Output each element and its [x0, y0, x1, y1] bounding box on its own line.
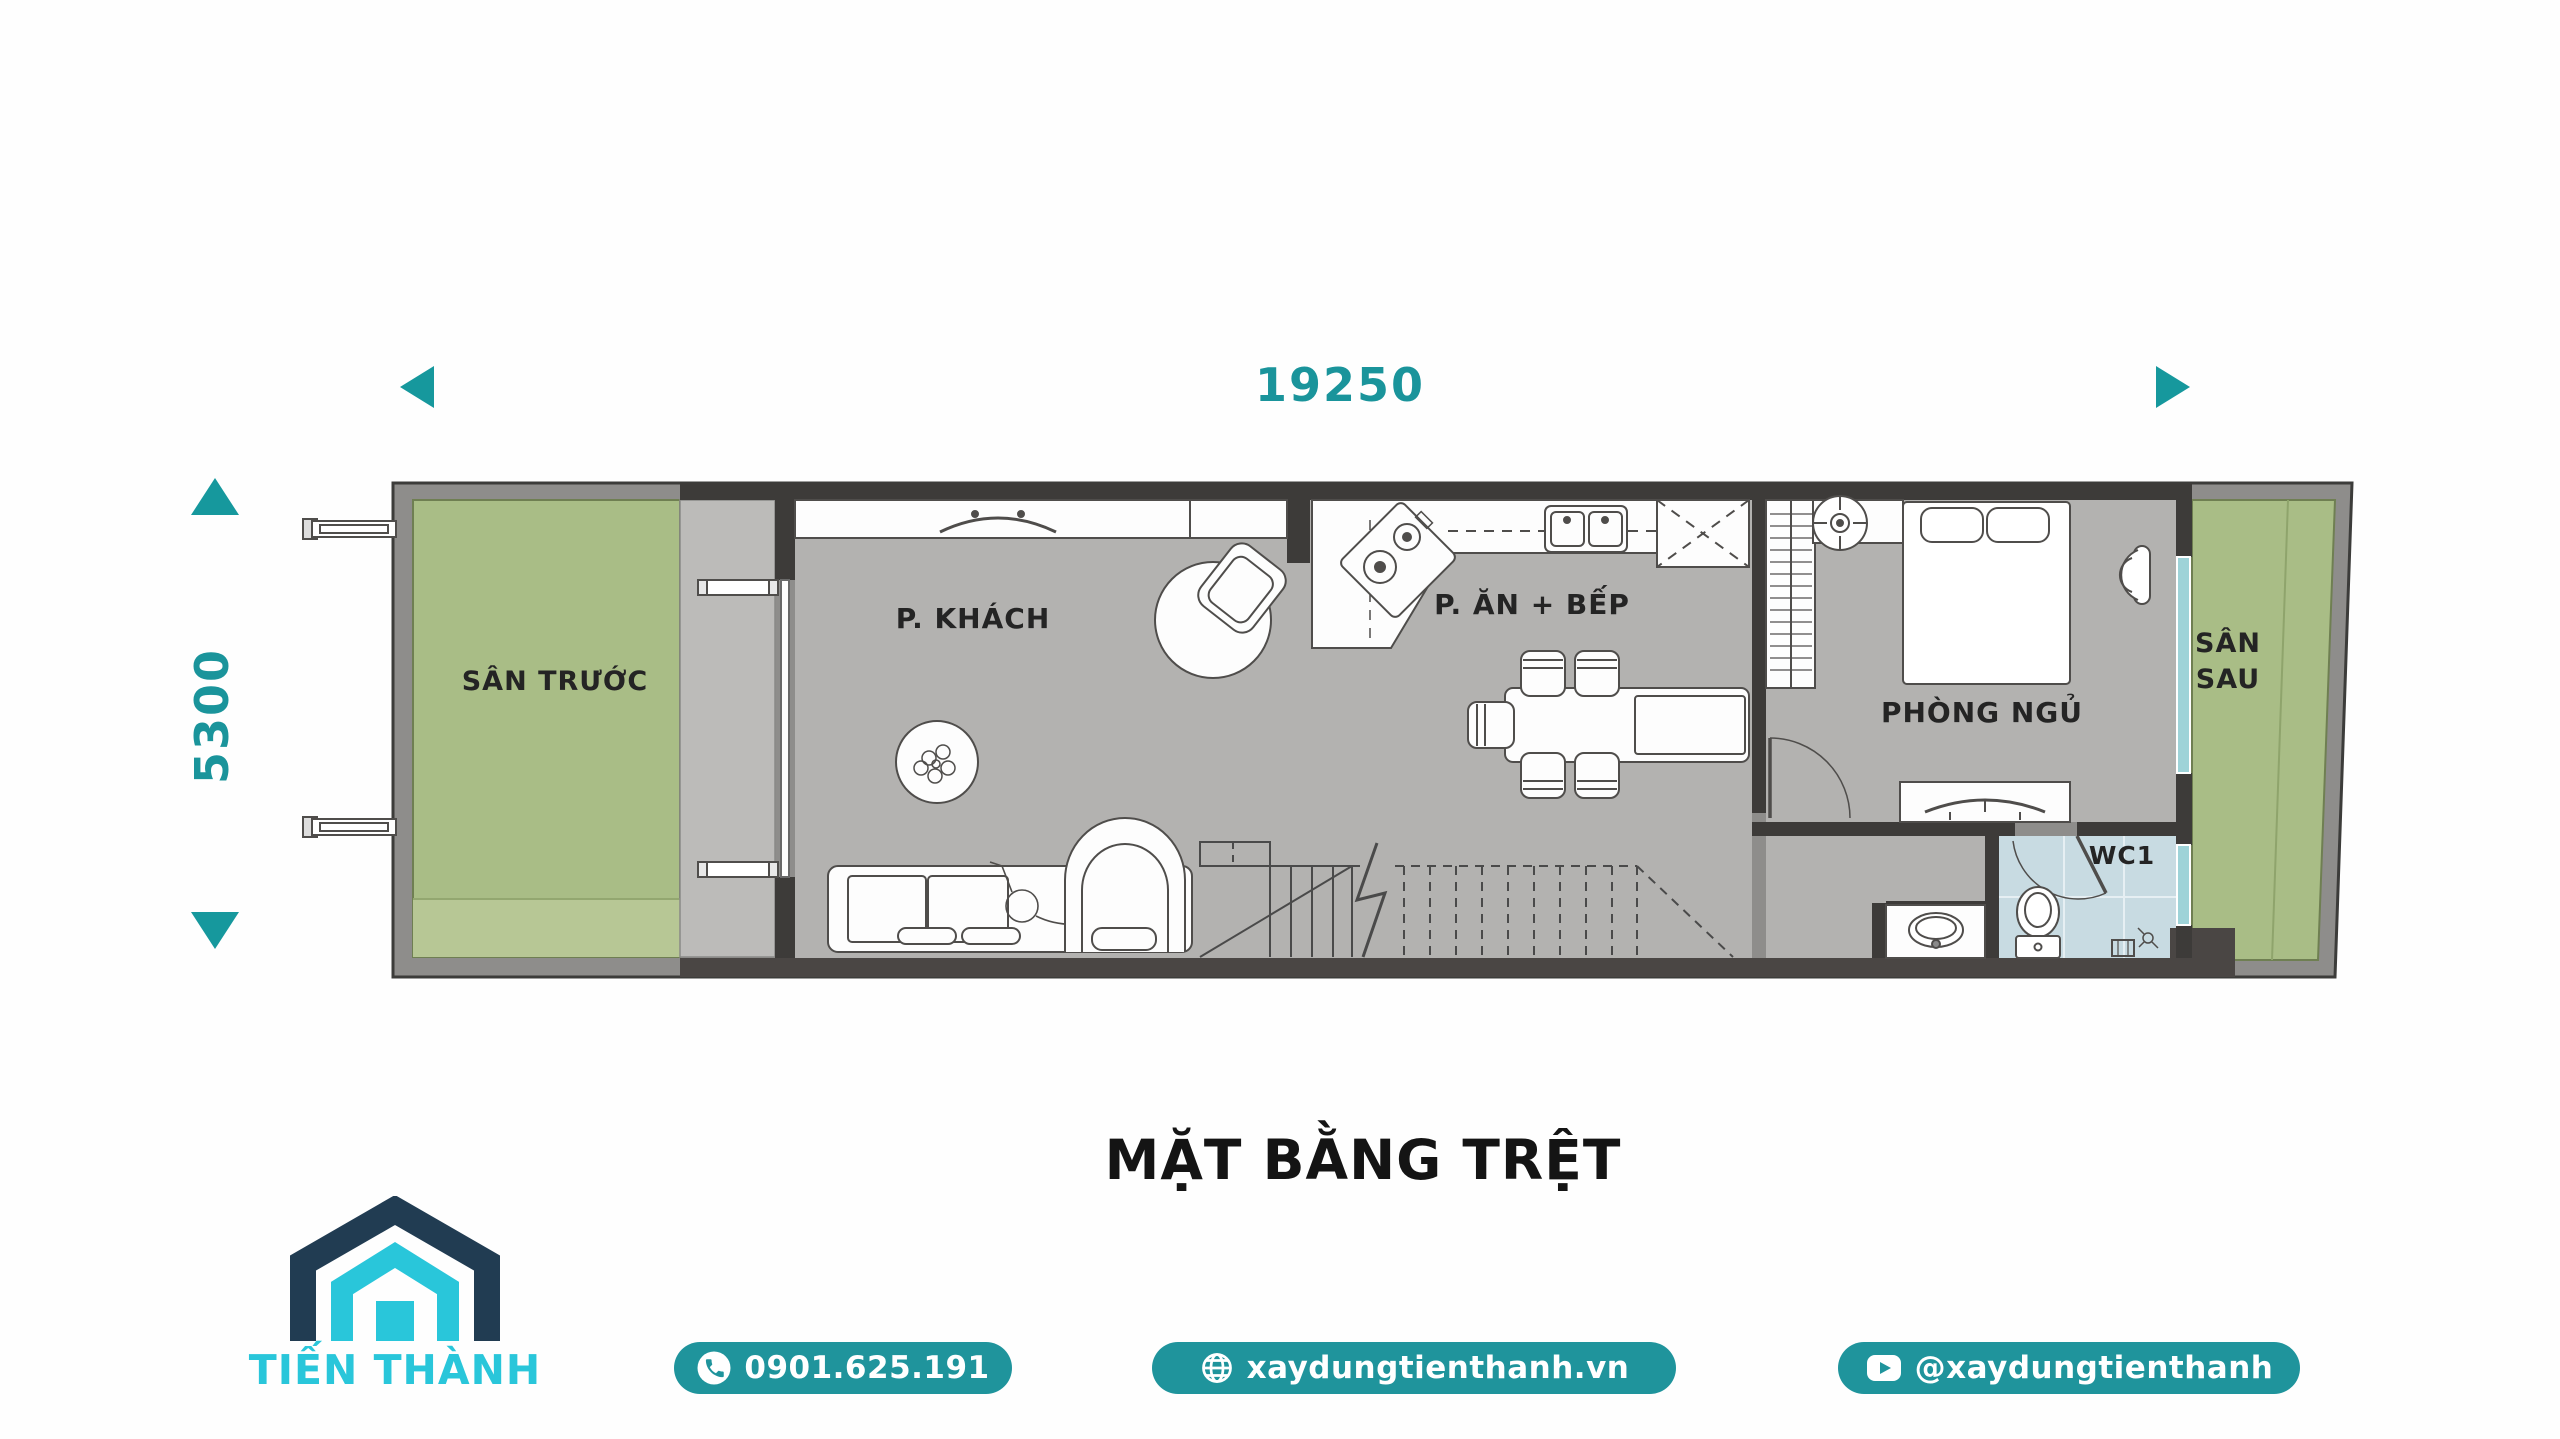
brand-name: TIẾN THÀNH — [249, 1346, 541, 1394]
phone-button[interactable]: 0901.625.191 — [674, 1342, 1012, 1394]
front-glass-door — [781, 580, 789, 877]
front-yard — [413, 500, 680, 957]
bedroom-window — [2177, 557, 2190, 773]
front-yard-label: SÂN TRƯỚC — [462, 665, 649, 697]
wc-label: WC1 — [2089, 841, 2155, 870]
website-button[interactable]: xaydungtienthanh.vn — [1152, 1342, 1676, 1394]
front-gates — [303, 519, 396, 837]
back-yard — [2192, 500, 2335, 960]
globe-icon — [1199, 1350, 1235, 1386]
phone-icon — [696, 1350, 732, 1386]
phone-label: 0901.625.191 — [744, 1350, 989, 1386]
page-title: MẶT BẰNG TRỆT — [1105, 1128, 1622, 1192]
back-yard-label-line2: SAU — [2196, 664, 2260, 695]
back-yard-label-line1: SÂN — [2195, 627, 2261, 659]
youtube-icon — [1865, 1353, 1903, 1383]
brand-logo-icon — [270, 1196, 520, 1346]
social-button[interactable]: @xaydungtienthanh — [1838, 1342, 2300, 1394]
wc-window — [2177, 845, 2190, 925]
living-room-label: P. KHÁCH — [896, 601, 1051, 635]
page: 19250 5300 — [0, 0, 2560, 1439]
social-label: @xaydungtienthanh — [1915, 1350, 2274, 1386]
front-porch — [680, 500, 775, 957]
bedroom-label: PHÒNG NGỦ — [1881, 691, 2083, 729]
website-label: xaydungtienthanh.vn — [1247, 1350, 1630, 1386]
kitchen-label: P. ĂN + BẾP — [1434, 584, 1630, 621]
